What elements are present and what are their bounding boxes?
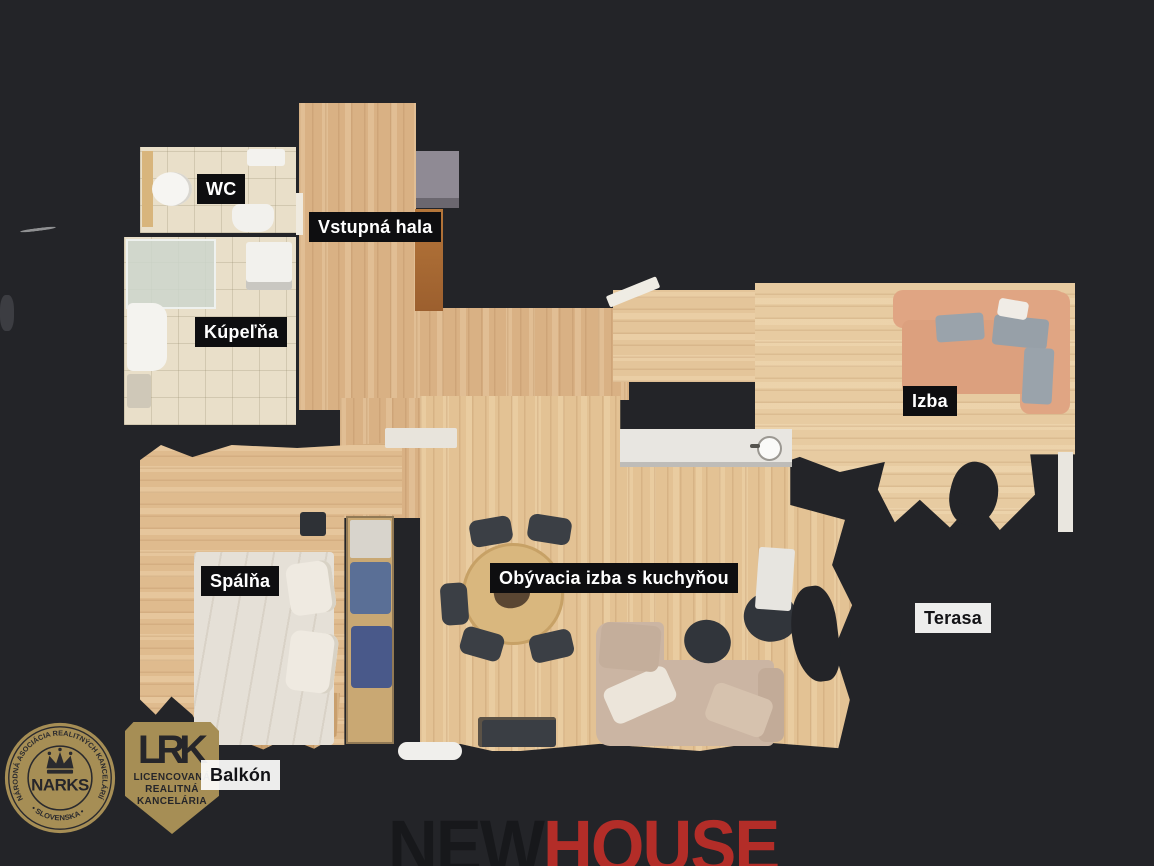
izba-door-frame — [1058, 452, 1073, 532]
room-label-terasa: Terasa — [915, 603, 991, 633]
lrk-line-3: KANCELÁRIA — [125, 796, 219, 808]
room-label-spalna: Spálňa — [201, 566, 279, 596]
izba-sofa-cushion-1 — [935, 312, 985, 342]
bathroom-cabinet — [127, 374, 151, 408]
tv-stand — [478, 717, 556, 747]
corridor-floor — [613, 290, 763, 382]
izba-sofa-cushion-3 — [1022, 347, 1055, 404]
room-label-balkon: Balkón — [201, 760, 280, 790]
room-label-wc: WC — [197, 174, 245, 204]
door-frame-gap — [296, 193, 303, 235]
hall-wardrobe — [416, 151, 459, 208]
room-label-vstupna-hala: Vstupná hala — [309, 212, 441, 242]
washing-machine — [246, 242, 292, 290]
pillow-2 — [285, 629, 340, 694]
floor-plan-canvas: WC Vstupná hala Kúpeľňa Izba Spálňa Obýv… — [0, 0, 1154, 866]
wc-sink — [232, 204, 274, 232]
dining-chair-3 — [440, 582, 470, 626]
wardrobe-box-light — [350, 520, 391, 558]
desk — [755, 547, 795, 611]
toilet — [152, 172, 192, 206]
agency-logo-house: HOUSE — [543, 805, 778, 866]
sideboard — [385, 428, 457, 448]
cistern — [247, 149, 285, 166]
room-label-obyvacia-izba: Obývacia izba s kuchyňou — [490, 563, 738, 593]
narks-badge: NÁRODNÁ ASOCIÁCIA REALITNÝCH KANCELÁRIÍ … — [2, 720, 118, 836]
scan-sliver-1 — [20, 226, 56, 233]
sofa-backrest — [598, 621, 662, 672]
radiator — [398, 742, 462, 760]
kitchen-sink — [757, 436, 782, 461]
room-label-kupelna: Kúpeľňa — [195, 317, 287, 347]
agency-logo: NEWHOUSE — [388, 810, 778, 866]
wardrobe-item-blue-1 — [350, 562, 391, 614]
wardrobe-item-blue-2 — [351, 626, 392, 688]
narks-center-text: NARKS — [31, 776, 89, 795]
nightstand — [300, 512, 326, 536]
hall-floor-horizontal — [299, 308, 629, 400]
pillow-1 — [285, 559, 338, 617]
room-label-izba: Izba — [903, 386, 957, 416]
agency-logo-new: NEW — [388, 805, 543, 866]
shower — [126, 239, 216, 309]
kitchen-faucet — [750, 444, 760, 448]
bathroom-sink — [127, 303, 167, 371]
scan-sliver-2 — [0, 295, 14, 331]
